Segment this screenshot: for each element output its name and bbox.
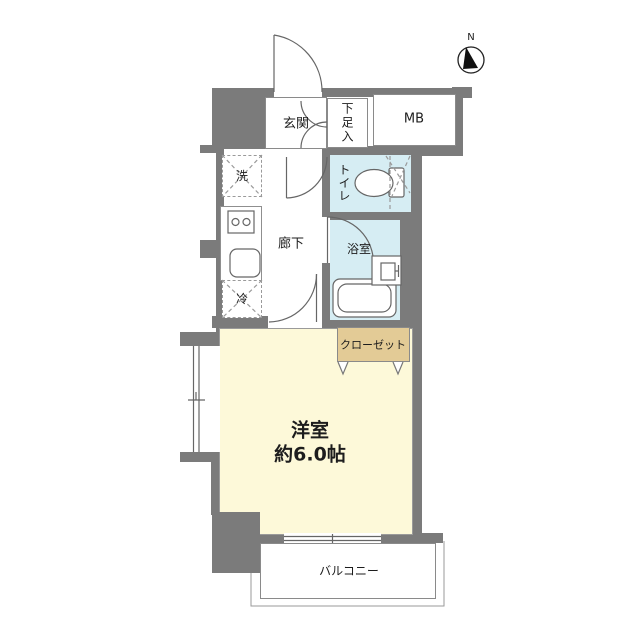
hallway-label: 廊下	[278, 238, 304, 251]
washing-machine-label: 洗	[236, 170, 248, 182]
bathroom-label: 浴室	[347, 243, 371, 255]
bedroom-label: 洋室 約6.0帖	[274, 419, 346, 467]
wall-topleft-lip	[200, 145, 212, 153]
balcony-label: バルコニー	[319, 565, 379, 577]
window-bay	[185, 346, 220, 452]
wall-window-tab-bottom	[180, 452, 220, 462]
meter-box-label: MB	[404, 113, 424, 126]
wall-window-tab-top	[180, 332, 220, 346]
bath-door-gap	[322, 217, 330, 263]
wall-mb-right	[456, 96, 463, 148]
balcony-slide-strip	[284, 533, 381, 543]
wall-left-lower	[211, 462, 219, 515]
shoe-cabinet-label: 下足入	[341, 102, 353, 144]
entrance-door-arc	[274, 35, 322, 92]
floor-plan: N 玄関 下足入 MB 洗 トイレ 廊下 浴室 冷 クローゼット 洋室 約6.0…	[0, 0, 640, 640]
bedroom-size: 約6.0帖	[274, 443, 346, 467]
bathroom-room	[330, 220, 400, 320]
compass-needle-icon	[463, 47, 478, 69]
toilet-label: トイレ	[338, 164, 350, 203]
wall-left-stub	[200, 240, 218, 258]
wall-block-bottomleft	[212, 512, 260, 573]
refrigerator-label: 冷	[236, 293, 248, 305]
genkan-label: 玄関	[283, 118, 309, 131]
closet-label: クローゼット	[340, 340, 406, 351]
kitchen-counter	[220, 206, 262, 281]
wall-block-topleft	[212, 88, 265, 153]
compass-north-label: N	[467, 33, 474, 43]
compass-circle	[458, 47, 484, 73]
bedroom-name: 洋室	[274, 419, 346, 443]
